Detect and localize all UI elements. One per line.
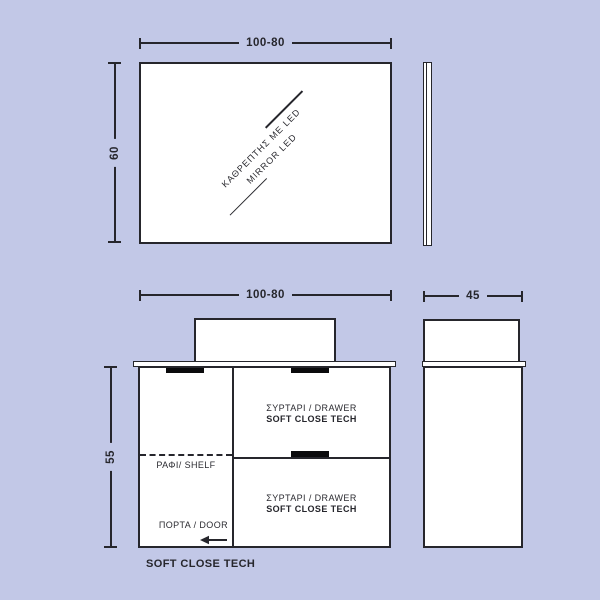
dimension-tick <box>104 546 117 548</box>
drawer-top-label-block: ΣΥΡΤΑΡΙ / DRAWER SOFT CLOSE TECH <box>234 403 389 424</box>
cabinet-width-value: 100-80 <box>246 289 285 301</box>
drawer-bottom-label-block: ΣΥΡΤΑΡΙ / DRAWER SOFT CLOSE TECH <box>234 493 389 514</box>
dimension-tick <box>390 38 392 49</box>
dimension-tick <box>521 291 523 302</box>
dimension-line <box>292 294 390 296</box>
mirror-led-annotation: ΚΑΘΡΕΠΤΗΣ ΜΕ LED MIRROR LED <box>214 102 316 204</box>
mirror-height-value: 60 <box>109 139 121 167</box>
drawer-top-handle <box>291 368 329 373</box>
mirror-side-panel <box>423 62 432 246</box>
mirror-width-value: 100-80 <box>246 37 285 49</box>
dimension-line <box>292 42 390 44</box>
door-label: ΠΟΡΤΑ / DOOR <box>140 520 228 530</box>
cabinet-front-width-dimension: 100-80 <box>139 289 392 301</box>
drawer-top-label: ΣΥΡΤΑΡΙ / DRAWER <box>234 403 389 414</box>
soft-close-footnote: SOFT CLOSE TECH <box>146 558 255 570</box>
dimension-line <box>141 294 239 296</box>
basin-side-panel <box>423 319 520 363</box>
drawer-bottom-label: ΣΥΡΤΑΡΙ / DRAWER <box>234 493 389 504</box>
technical-drawing-canvas: 100-80 60 ΚΑΘΡΕΠΤΗΣ ΜΕ LED MIRROR LED 10… <box>0 0 600 600</box>
cabinet-side-depth-dimension: 45 <box>423 290 523 302</box>
drawer-divider <box>234 457 389 459</box>
cabinet-height-value: 55 <box>105 443 117 471</box>
cabinet-front-body: ΡΑΦΙ/ SHELF ΠΟΡΤΑ / DOOR ΣΥΡΤΑΡΙ / DRAWE… <box>138 366 391 548</box>
door-handle <box>166 368 204 373</box>
shelf-dashed-line <box>140 454 232 456</box>
mirror-label-greek: ΚΑΘΡΕΠΤΗΣ ΜΕ LED <box>219 106 302 189</box>
dimension-line <box>487 295 521 297</box>
drawer-top-softclose-label: SOFT CLOSE TECH <box>234 414 389 425</box>
dimension-line <box>141 42 239 44</box>
cabinet-side-body <box>423 366 523 548</box>
mirror-front-height-dimension: 60 <box>108 62 121 243</box>
shelf-label: ΡΑΦΙ/ SHELF <box>140 460 232 470</box>
basin-front-panel <box>194 318 336 364</box>
mirror-front-width-dimension: 100-80 <box>139 37 392 49</box>
cabinet-depth-value: 45 <box>466 290 480 302</box>
dimension-tick <box>390 290 392 301</box>
cabinet-front-height-dimension: 55 <box>104 366 117 548</box>
door-direction-arrow-icon <box>200 532 227 550</box>
drawer-bottom-softclose-label: SOFT CLOSE TECH <box>234 504 389 515</box>
mirror-side-inner-line <box>426 63 428 245</box>
annotation-line-bottom <box>229 178 267 216</box>
dimension-line <box>425 295 459 297</box>
dimension-tick <box>108 241 121 243</box>
mirror-front-panel: ΚΑΘΡΕΠΤΗΣ ΜΕ LED MIRROR LED <box>139 62 392 244</box>
